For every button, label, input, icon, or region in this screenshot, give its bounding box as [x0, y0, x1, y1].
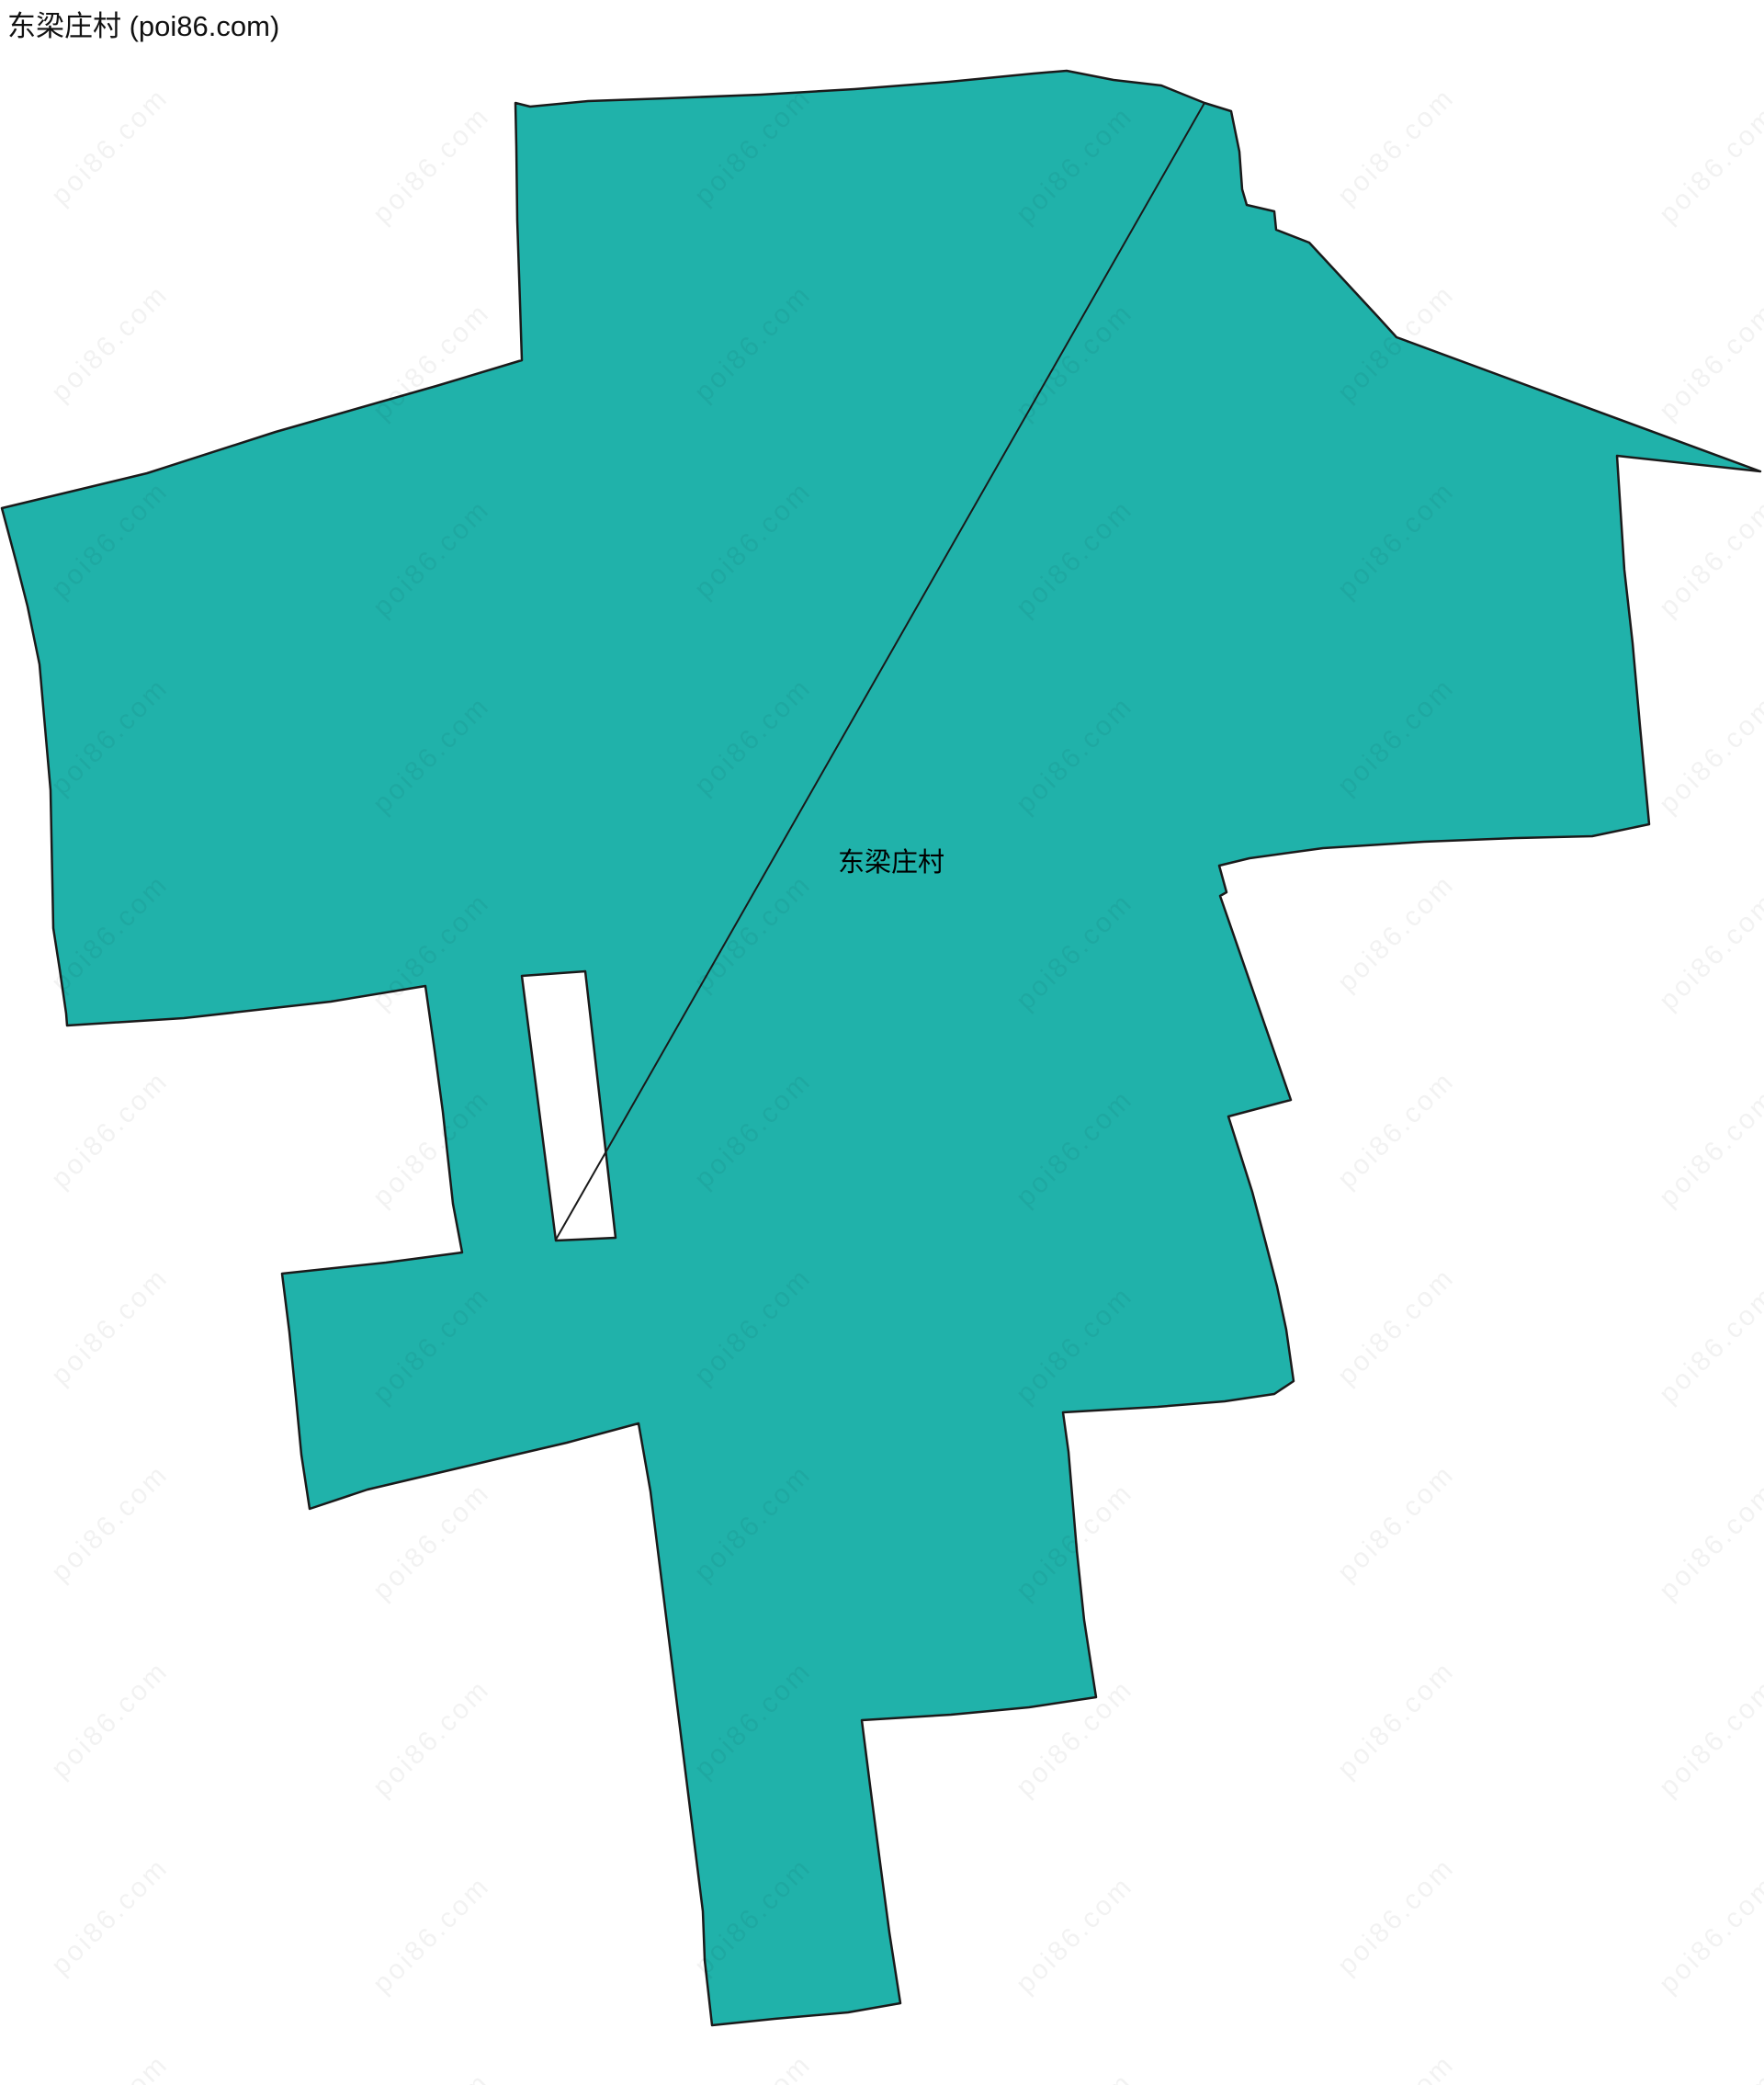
village-boundary-polygon: [2, 71, 1760, 2025]
village-label: 东梁庄村: [838, 847, 944, 878]
village-map: 东梁庄村: [0, 0, 1764, 2085]
page-title: 东梁庄村 (poi86.com): [7, 9, 279, 43]
map-page: 东梁庄村 poi86.compoi86.compoi86.compoi86.co…: [0, 0, 1764, 2085]
